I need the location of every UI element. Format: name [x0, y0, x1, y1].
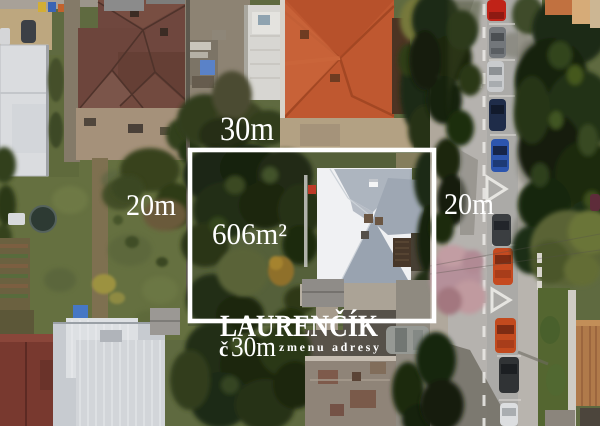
svg-text:č: č: [219, 337, 228, 361]
svg-text:30m: 30m: [220, 111, 274, 148]
svg-text:20m: 20m: [126, 189, 176, 222]
svg-text:30m: 30m: [231, 332, 276, 363]
svg-text:606m²: 606m²: [212, 218, 287, 251]
svg-text:20m: 20m: [444, 188, 494, 221]
